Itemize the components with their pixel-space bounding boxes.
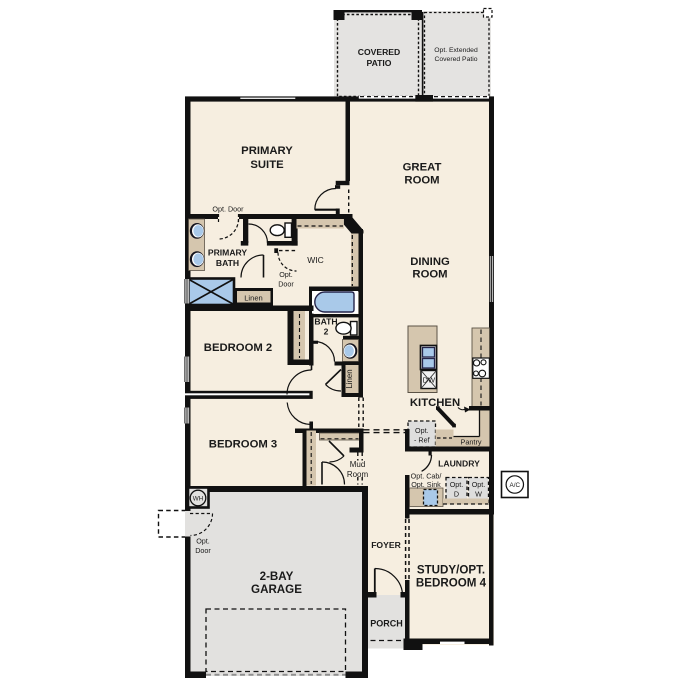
svg-text:ROOM: ROOM <box>412 269 447 281</box>
svg-text:W: W <box>475 490 482 499</box>
svg-text:Door: Door <box>278 280 294 289</box>
svg-text:PATIO: PATIO <box>367 58 392 68</box>
svg-text:GARAGE: GARAGE <box>251 583 302 596</box>
svg-text:Opt. Door: Opt. Door <box>212 205 244 214</box>
svg-text:Mud: Mud <box>350 460 366 469</box>
svg-text:Covered Patio: Covered Patio <box>434 56 477 63</box>
svg-text:PORCH: PORCH <box>370 619 403 629</box>
svg-text:2: 2 <box>324 327 329 337</box>
svg-text:COVERED: COVERED <box>358 47 401 57</box>
svg-text:STUDY/OPT.: STUDY/OPT. <box>417 564 485 577</box>
svg-text:- Ref: - Ref <box>414 436 430 445</box>
svg-text:Opt.: Opt. <box>450 480 464 489</box>
svg-text:2-BAY: 2-BAY <box>260 570 294 583</box>
svg-text:GREAT: GREAT <box>403 162 442 174</box>
svg-text:LAUNDRY: LAUNDRY <box>438 459 480 469</box>
svg-text:Opt.: Opt. <box>279 270 293 279</box>
svg-text:DW: DW <box>423 376 436 385</box>
svg-text:A/C: A/C <box>510 482 521 489</box>
svg-text:Opt.: Opt. <box>415 426 429 435</box>
svg-text:PRIMARY: PRIMARY <box>208 247 248 257</box>
svg-text:DINING: DINING <box>410 256 450 268</box>
svg-text:Door: Door <box>195 546 211 555</box>
svg-text:Opt. Extended: Opt. Extended <box>434 47 478 54</box>
svg-text:PRIMARY: PRIMARY <box>241 145 293 157</box>
svg-text:Linen: Linen <box>244 294 263 303</box>
svg-text:Opt.: Opt. <box>472 480 486 489</box>
svg-text:Opt. Sink: Opt. Sink <box>411 480 441 489</box>
svg-text:BEDROOM 2: BEDROOM 2 <box>204 342 272 354</box>
svg-text:SUITE: SUITE <box>250 159 284 171</box>
svg-text:Opt.: Opt. <box>196 537 210 546</box>
svg-text:BEDROOM 3: BEDROOM 3 <box>209 439 277 451</box>
svg-text:BATH: BATH <box>216 258 239 268</box>
svg-text:ROOM: ROOM <box>404 175 439 187</box>
svg-text:Pantry: Pantry <box>460 438 481 447</box>
svg-text:WH: WH <box>193 496 204 503</box>
svg-text:FOYER: FOYER <box>371 540 401 550</box>
svg-text:Linen: Linen <box>345 369 354 388</box>
svg-text:D: D <box>454 490 459 499</box>
svg-text:WIC: WIC <box>307 255 324 265</box>
svg-text:BATH: BATH <box>314 317 337 327</box>
svg-text:KITCHEN: KITCHEN <box>410 397 460 409</box>
svg-text:BEDROOM 4: BEDROOM 4 <box>416 577 487 590</box>
